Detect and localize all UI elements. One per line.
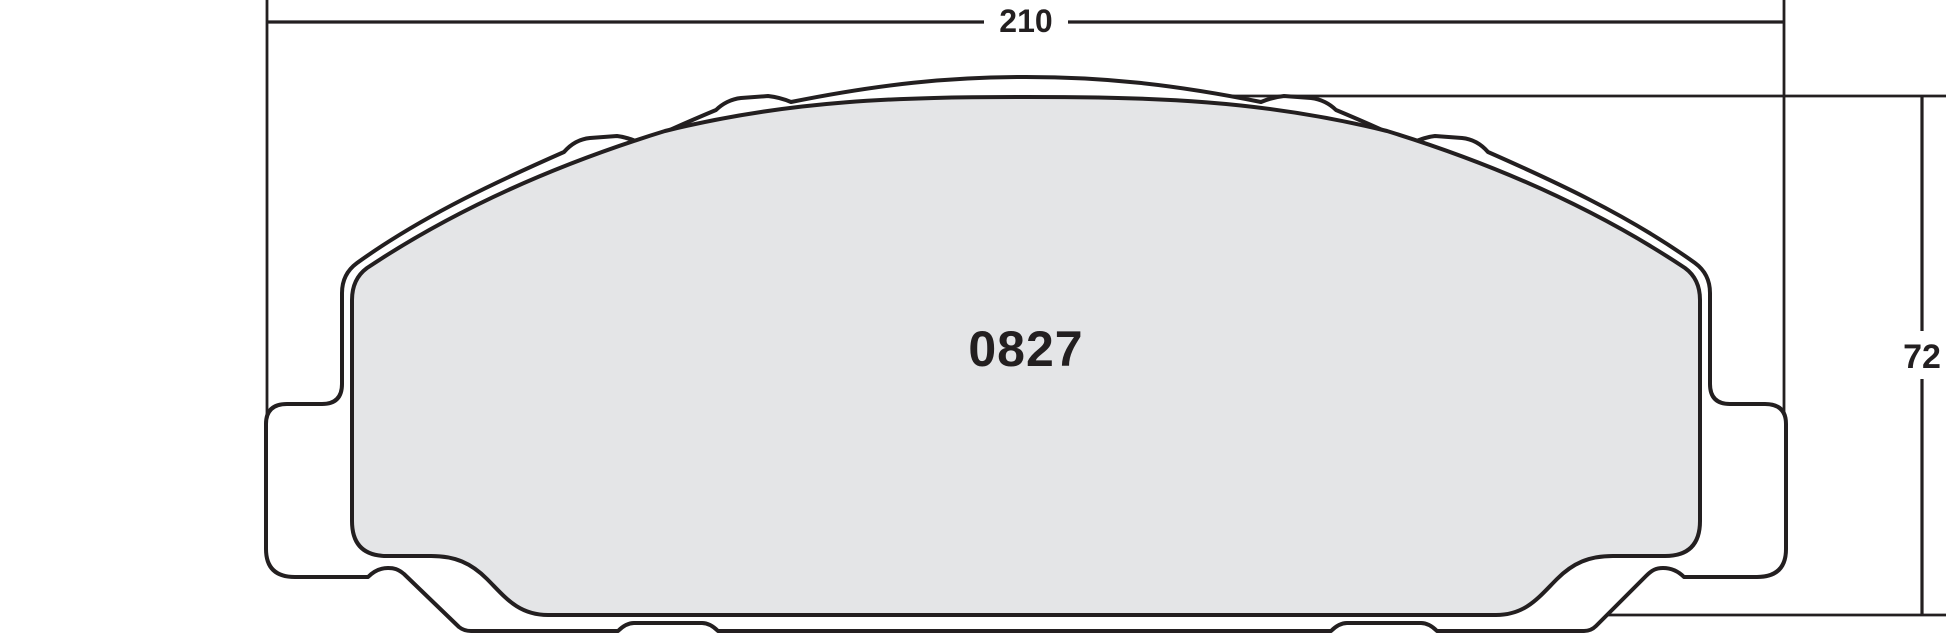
width-dimension-label: 210 xyxy=(999,3,1052,39)
height-dimension-label: 72 xyxy=(1903,338,1941,376)
brake-pad-technical-drawing: 210 72 0827 xyxy=(0,0,1946,635)
part-number-label: 0827 xyxy=(968,321,1083,377)
drawing-canvas: 210 72 0827 xyxy=(0,0,1946,635)
